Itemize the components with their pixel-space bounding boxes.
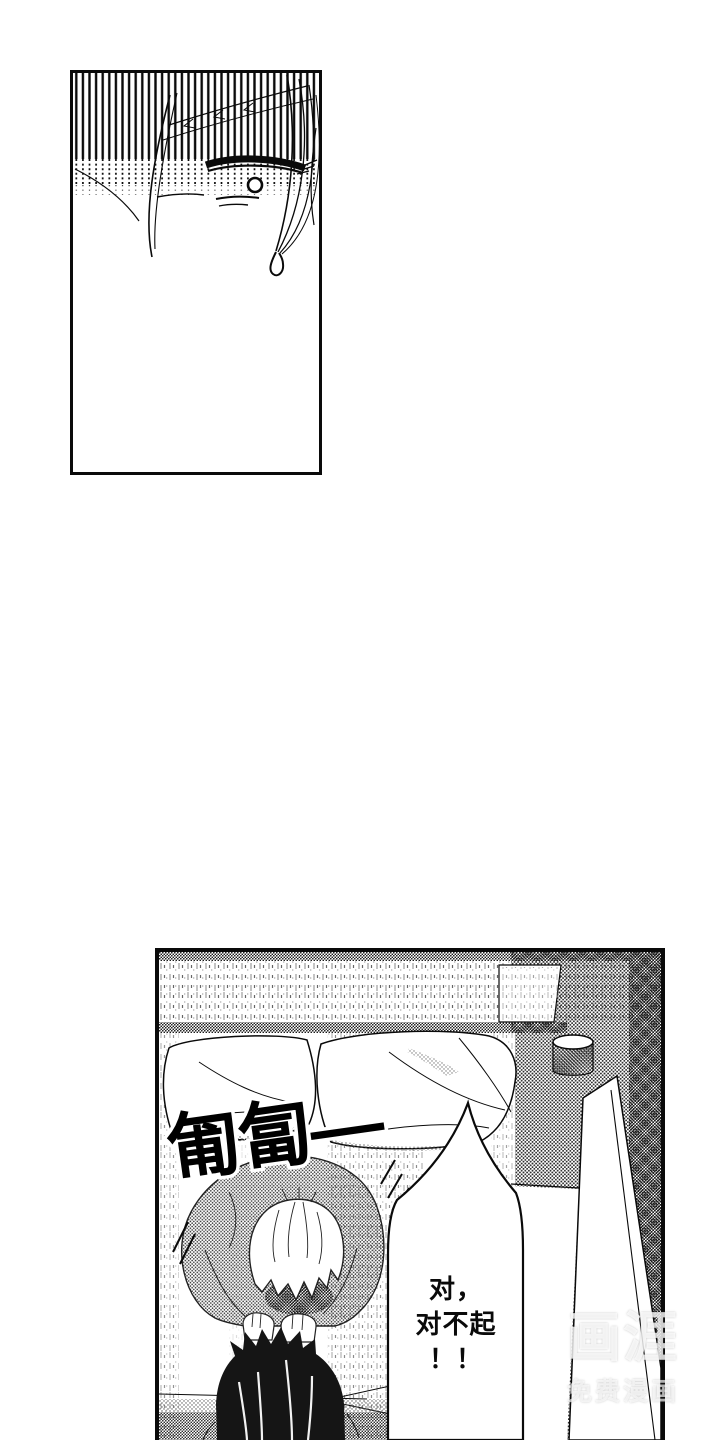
speech-line-1: 对，: [387, 1272, 525, 1307]
speech-line-3: ！！: [387, 1342, 525, 1377]
speed-lines: [73, 73, 319, 197]
sweat-drop: [270, 252, 283, 275]
speech-bubble-text: 对， 对不起 ！！: [387, 1272, 525, 1377]
manga-panel-bottom: 匍匐— 对， 对不起 ！！: [155, 948, 665, 1440]
speech-line-2: 对不起: [387, 1307, 525, 1342]
cup: [553, 1035, 593, 1075]
manga-page: 匍匐— 对， 对不起 ！！ 画涯 免费漫画: [0, 0, 720, 1440]
manga-panel-top: [70, 70, 322, 475]
eye-closeup-illustration: [73, 73, 319, 472]
